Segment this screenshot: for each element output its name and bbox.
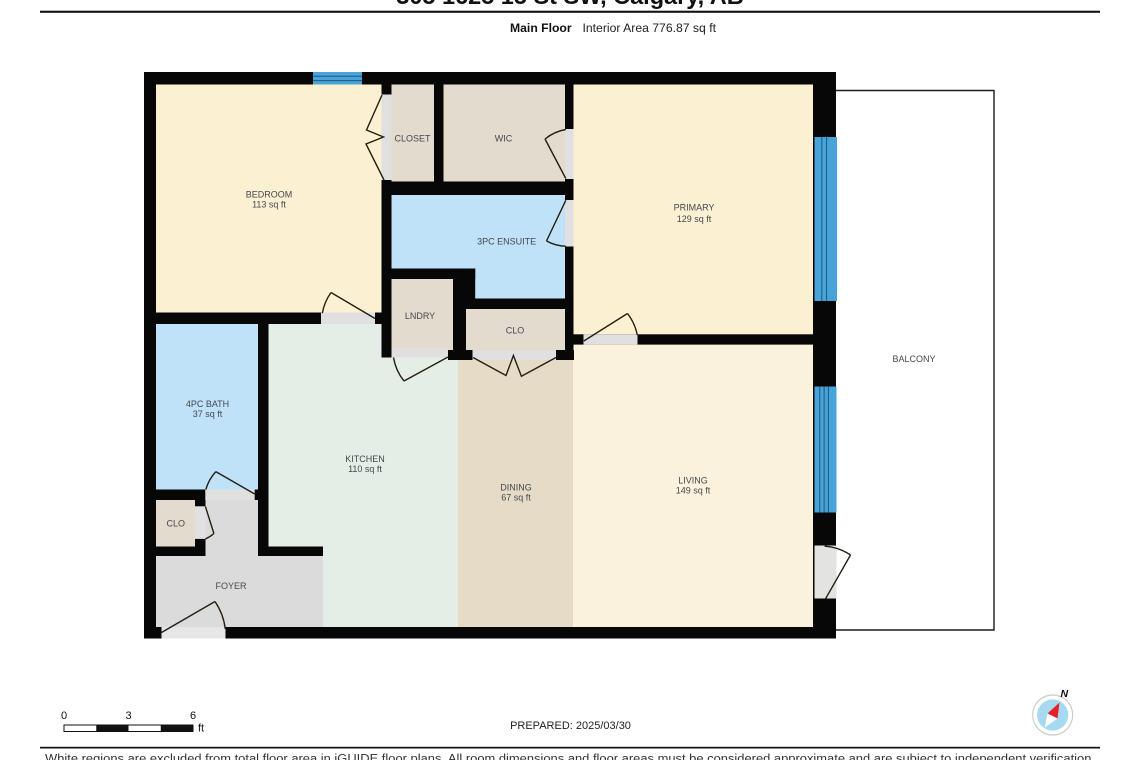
svg-text:113 sq ft: 113 sq ft bbox=[252, 200, 286, 210]
svg-text:BALCONY: BALCONY bbox=[892, 354, 935, 364]
svg-text:149 sq ft: 149 sq ft bbox=[676, 486, 711, 496]
svg-text:67 sq ft: 67 sq ft bbox=[501, 493, 531, 503]
svg-text:129 sq ft: 129 sq ft bbox=[677, 214, 712, 224]
svg-text:LIVING: LIVING bbox=[678, 476, 708, 486]
svg-text:3PC ENSUITE: 3PC ENSUITE bbox=[477, 237, 536, 247]
svg-text:CLO: CLO bbox=[506, 326, 525, 336]
svg-text:PREPARED: 2025/03/30: PREPARED: 2025/03/30 bbox=[510, 720, 631, 732]
svg-text:DINING: DINING bbox=[500, 483, 532, 493]
svg-text:CLO: CLO bbox=[167, 519, 186, 529]
svg-text:PRIMARY: PRIMARY bbox=[674, 203, 715, 213]
svg-text:37 sq ft: 37 sq ft bbox=[193, 409, 223, 419]
svg-text:BEDROOM: BEDROOM bbox=[246, 190, 293, 200]
svg-text:ft: ft bbox=[198, 723, 204, 735]
svg-text:White regions are excluded fro: White regions are excluded from total fl… bbox=[45, 754, 1095, 760]
svg-text:WIC: WIC bbox=[495, 134, 513, 144]
svg-text:CLOSET: CLOSET bbox=[394, 134, 431, 144]
svg-text:3: 3 bbox=[125, 710, 131, 722]
svg-text:FOYER: FOYER bbox=[215, 581, 247, 591]
svg-text:110 sq ft: 110 sq ft bbox=[348, 464, 382, 474]
svg-text:6: 6 bbox=[190, 710, 196, 722]
svg-text:LNDRY: LNDRY bbox=[405, 311, 435, 321]
svg-text:0: 0 bbox=[61, 710, 67, 722]
svg-text:305 1625 15 St SW, Calgary, AB: 305 1625 15 St SW, Calgary, AB bbox=[396, 0, 743, 9]
svg-text:N: N bbox=[1061, 688, 1069, 700]
svg-text:Main Floor: Main Floor bbox=[510, 21, 572, 35]
svg-text:KITCHEN: KITCHEN bbox=[345, 454, 385, 464]
svg-text:Interior Area 776.87 sq ft: Interior Area 776.87 sq ft bbox=[583, 21, 717, 35]
svg-text:4PC BATH: 4PC BATH bbox=[186, 399, 229, 409]
